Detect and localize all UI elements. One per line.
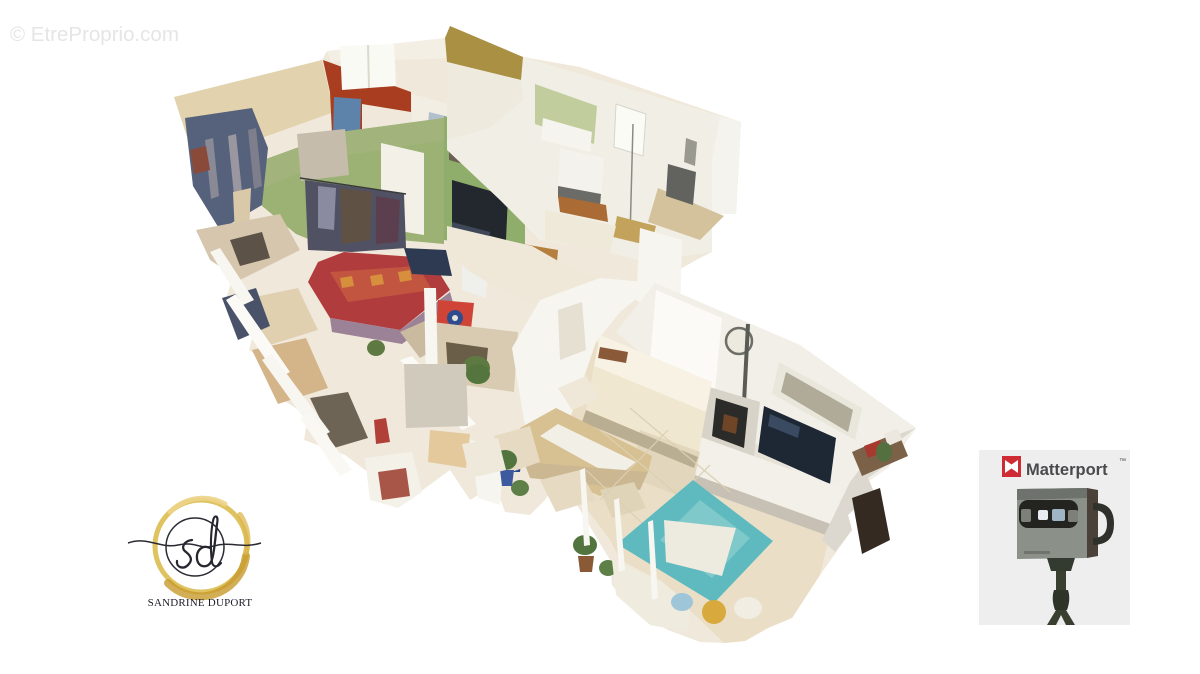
svg-text:™: ™ (1119, 458, 1126, 465)
svg-text:© EtreProprio.com: © EtreProprio.com (10, 23, 179, 46)
svg-text:Matterport: Matterport (1026, 461, 1108, 479)
svg-text:SANDRINE DUPORT: SANDRINE DUPORT (148, 597, 253, 609)
